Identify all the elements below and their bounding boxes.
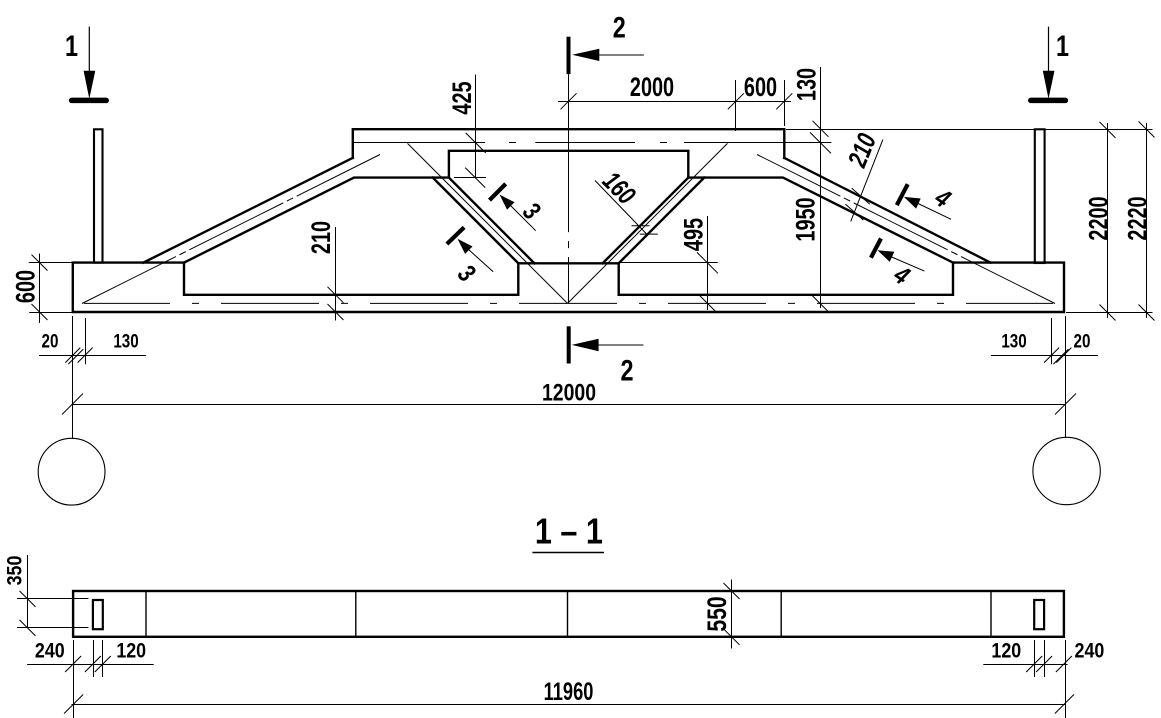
svg-text:20: 20 (1074, 330, 1091, 352)
svg-text:240: 240 (1075, 639, 1105, 663)
svg-text:1950: 1950 (791, 197, 820, 241)
svg-text:425: 425 (447, 81, 476, 114)
svg-text:120: 120 (116, 639, 146, 663)
svg-text:1 – 1: 1 – 1 (535, 512, 603, 552)
svg-text:2: 2 (613, 11, 626, 44)
svg-text:2000: 2000 (630, 72, 674, 101)
svg-text:120: 120 (991, 639, 1021, 663)
svg-text:550: 550 (703, 596, 733, 631)
svg-text:11960: 11960 (544, 677, 594, 706)
svg-text:130: 130 (113, 330, 138, 352)
svg-text:600: 600 (744, 72, 777, 101)
svg-text:350: 350 (3, 555, 27, 585)
svg-text:1: 1 (1056, 29, 1069, 62)
svg-text:12000: 12000 (542, 379, 596, 406)
svg-text:1: 1 (65, 29, 78, 62)
svg-text:2200: 2200 (1084, 196, 1113, 240)
svg-text:240: 240 (35, 639, 65, 663)
svg-text:2220: 2220 (1123, 196, 1152, 240)
svg-text:600: 600 (11, 270, 40, 303)
svg-text:130: 130 (1001, 330, 1026, 352)
svg-text:130: 130 (792, 68, 821, 101)
svg-text:2: 2 (620, 354, 633, 387)
svg-text:495: 495 (679, 218, 708, 251)
svg-text:20: 20 (42, 330, 59, 352)
svg-text:210: 210 (306, 221, 335, 254)
